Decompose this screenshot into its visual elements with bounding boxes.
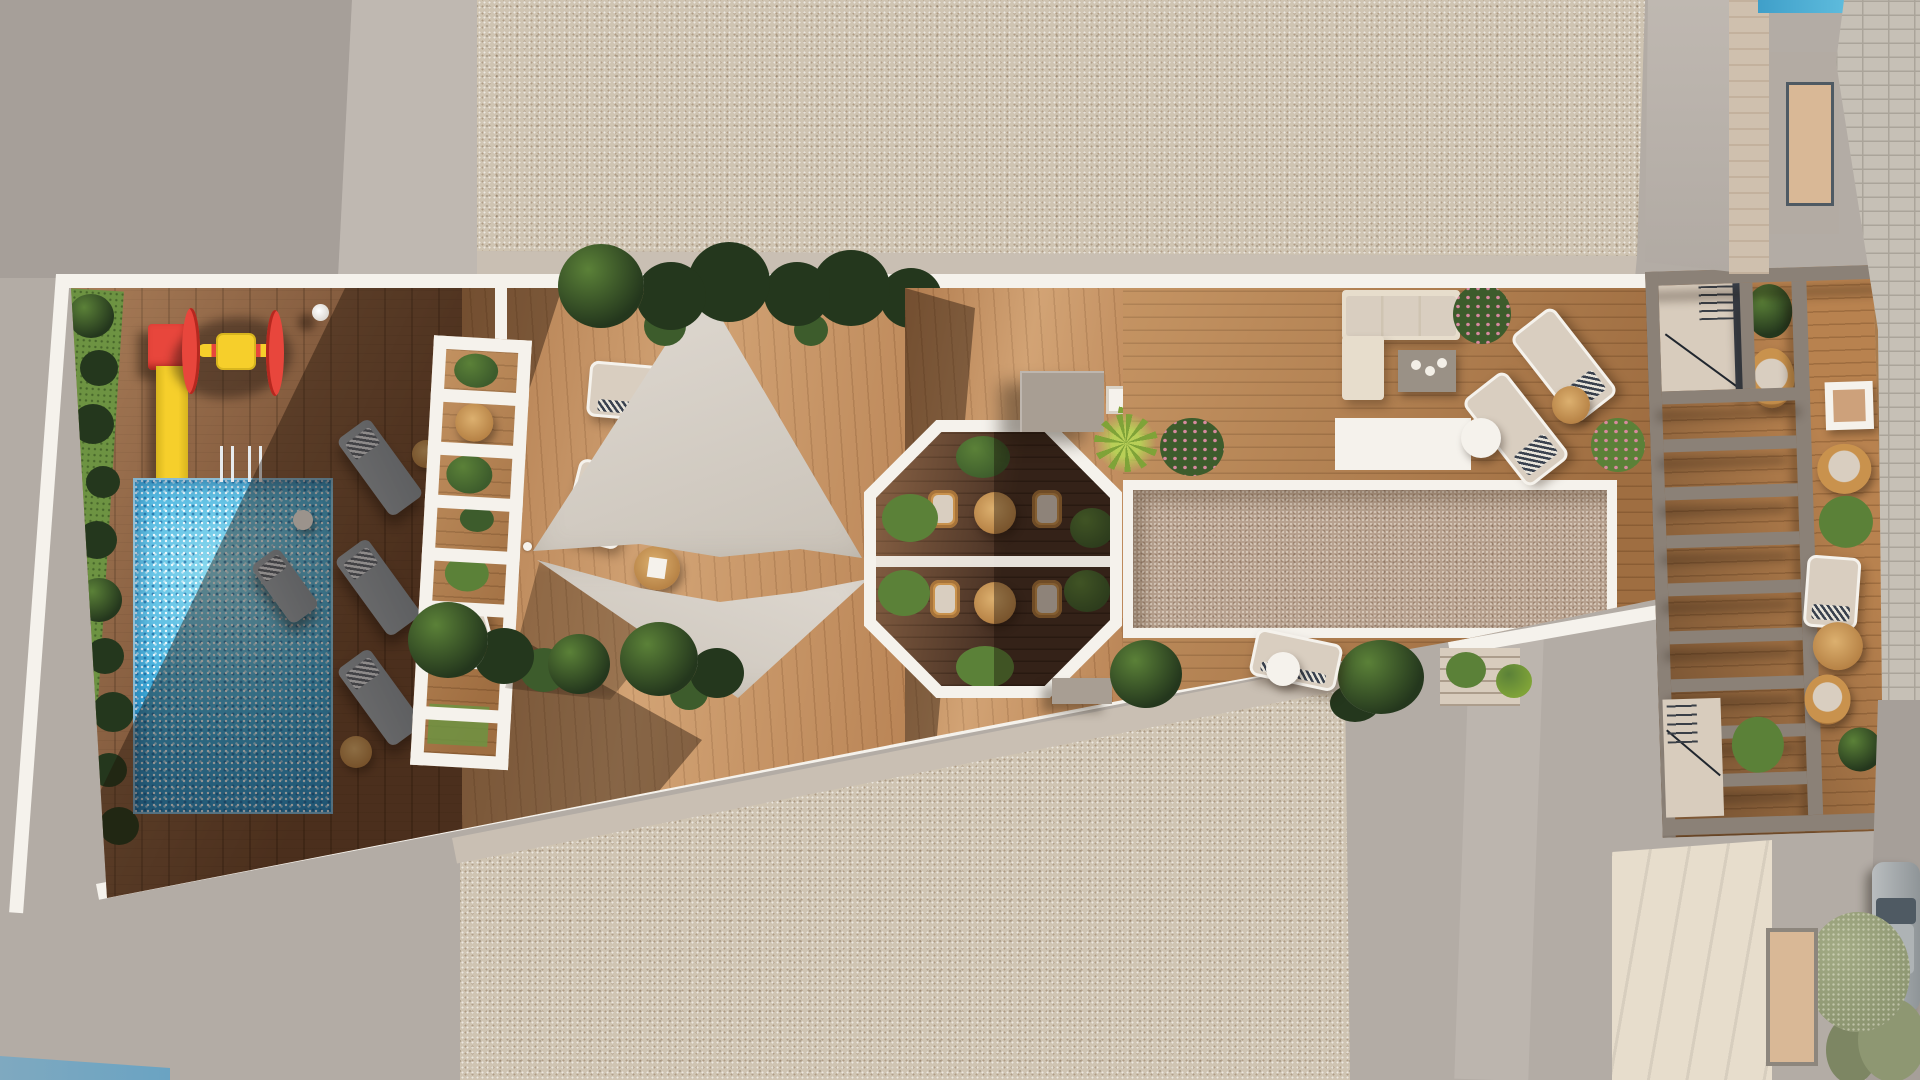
dining-chair-3: [930, 580, 960, 618]
octagon-mid-bar: [876, 556, 1110, 567]
pergola-lounge-chair: [1803, 554, 1862, 630]
coffee-table-tray: [1411, 360, 1421, 370]
sofa-seat: [1346, 296, 1456, 336]
hedge-shrubs-1: [68, 294, 114, 338]
foliage-row-top: [558, 244, 644, 328]
steps-bush-2: [1496, 664, 1532, 698]
gravel-court: [1133, 490, 1607, 628]
lounger-table-wood: [1552, 386, 1590, 424]
speckled-roof-top: [477, 0, 1645, 256]
serving-card: [647, 557, 668, 579]
deck-light: [312, 304, 329, 321]
foliage-row-bottom-2: [548, 634, 610, 694]
sofa-chaise: [1342, 336, 1384, 400]
walkway-notch: [1335, 418, 1471, 470]
foliage-row-bottom-3: [620, 622, 698, 696]
plant-below-gravel-2: [1338, 640, 1424, 714]
hedge-shrubs-2: [76, 578, 122, 622]
flower-bush-sofa: [1453, 284, 1511, 344]
cream-roof-bottom: [1612, 840, 1772, 1080]
wall-tan-strip: [1729, 0, 1769, 274]
terrace-border-top: [56, 274, 1658, 288]
stairwell-top: [1658, 283, 1743, 392]
stairwell-bottom: [1662, 698, 1724, 818]
spinner-drum: [216, 333, 256, 370]
lounger-table-white: [1461, 418, 1501, 458]
concrete-roof-shadowed: [0, 0, 352, 278]
garden-zone: [60, 288, 462, 903]
window-awning-bottom: [1766, 928, 1818, 1066]
terrace-border-left: [9, 274, 70, 913]
street-tree: [1806, 912, 1910, 1032]
spinner-disc-right: [266, 310, 284, 396]
concrete-roof-lit: [338, 0, 480, 278]
flower-bush-gravel: [1160, 418, 1224, 476]
framed-table-top: [1833, 389, 1866, 422]
window-awning-top: [1786, 82, 1834, 206]
stair-railing-top: [1665, 333, 1740, 389]
steps-bush-1: [1446, 652, 1486, 688]
spinner-disc-left: [182, 308, 200, 394]
octagon-bush-left-1: [882, 494, 938, 542]
foliage-row-bottom-1: [408, 602, 488, 678]
pool-ladder-1: [220, 446, 234, 482]
utility-block-small: [1052, 678, 1112, 704]
bush-lounger-corner: [1591, 418, 1645, 472]
coffee-table: [1398, 350, 1456, 392]
utility-block: [1020, 371, 1104, 432]
pergola: [1645, 264, 1907, 837]
rooftop-render: [0, 0, 1920, 1080]
stair-treads-bottom: [1667, 703, 1698, 744]
yucca-gravel-corner: [1094, 414, 1158, 472]
octagon-bush-left-2: [878, 570, 930, 616]
octagon-nook: [864, 420, 1122, 698]
lower-pool-sliver: [0, 1048, 170, 1080]
sail-pole-top: [698, 278, 708, 288]
sail-tie-left: [523, 542, 532, 551]
table-below-gravel: [1266, 652, 1300, 686]
plant-below-gravel-1: [1110, 640, 1182, 708]
building-wall-band: [1645, 0, 1733, 272]
octagon-floor: [876, 432, 1110, 686]
